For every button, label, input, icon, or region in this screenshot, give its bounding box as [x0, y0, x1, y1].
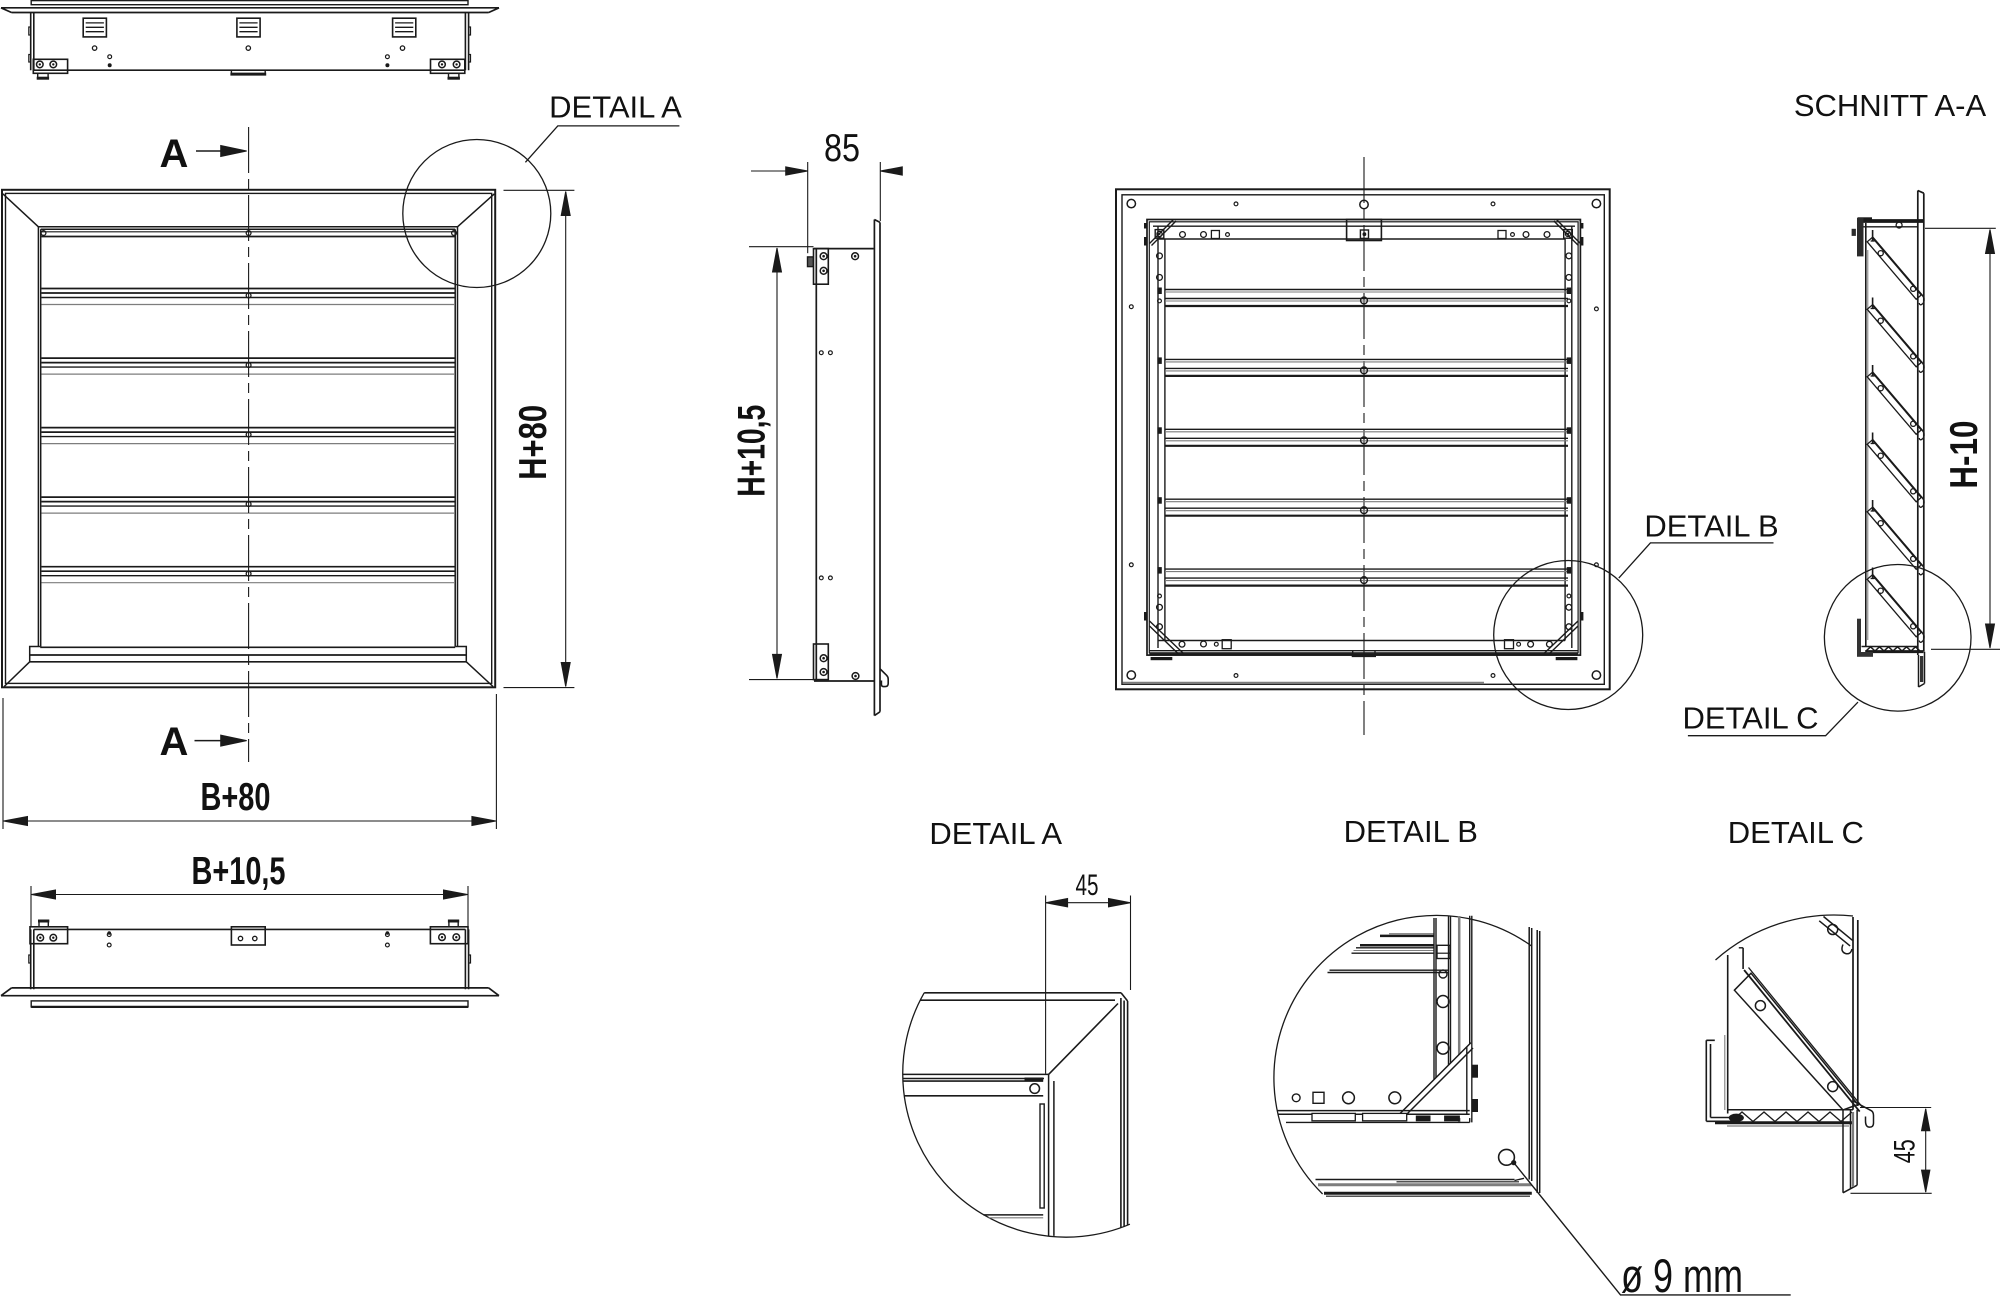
svg-text:B+10,5: B+10,5 [192, 850, 286, 893]
svg-text:DETAIL C: DETAIL C [1728, 815, 1864, 850]
svg-text:B+80: B+80 [201, 776, 271, 819]
svg-text:SCHNITT A-A: SCHNITT A-A [1794, 88, 1987, 123]
svg-text:H+10,5: H+10,5 [730, 405, 773, 497]
svg-text:ø 9 mm: ø 9 mm [1621, 1249, 1743, 1297]
svg-text:DETAIL A: DETAIL A [549, 90, 682, 125]
svg-text:H-10: H-10 [1943, 421, 1986, 489]
svg-text:A: A [160, 720, 189, 764]
svg-text:H+80: H+80 [512, 405, 555, 480]
svg-text:A: A [160, 132, 189, 176]
svg-text:85: 85 [824, 127, 860, 170]
svg-text:45: 45 [1889, 1139, 1922, 1163]
svg-text:DETAIL B: DETAIL B [1344, 814, 1478, 849]
svg-text:DETAIL A: DETAIL A [929, 816, 1062, 851]
svg-text:DETAIL C: DETAIL C [1682, 701, 1818, 736]
svg-text:45: 45 [1076, 869, 1099, 902]
svg-text:DETAIL B: DETAIL B [1644, 509, 1778, 544]
